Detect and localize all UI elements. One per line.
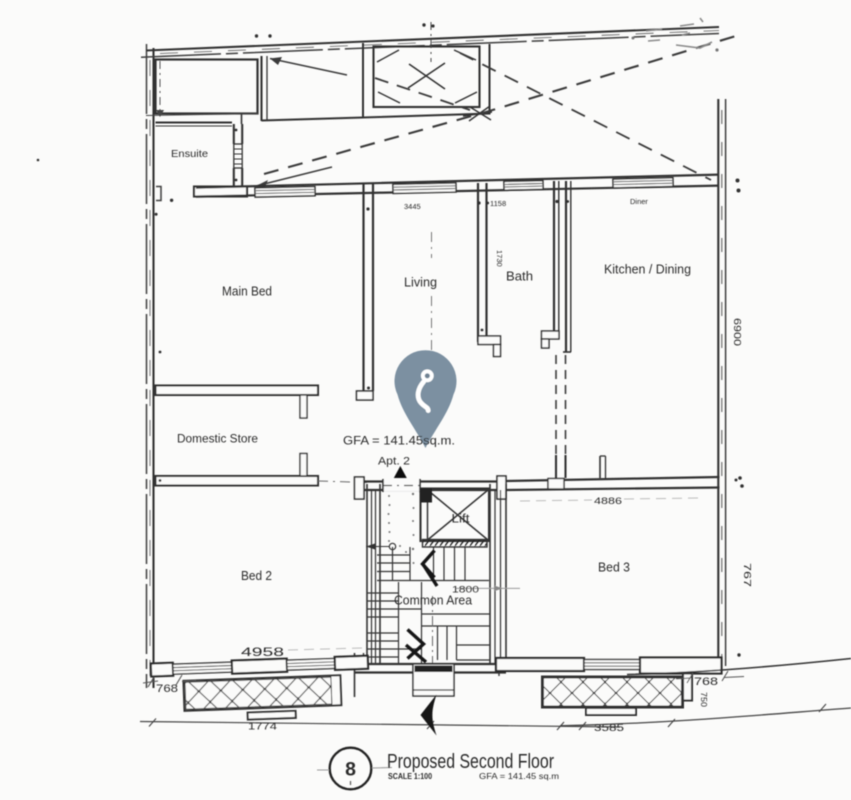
svg-text:3445: 3445 bbox=[404, 202, 421, 211]
svg-text:3585: 3585 bbox=[594, 723, 625, 734]
svg-text:6900: 6900 bbox=[731, 318, 742, 347]
svg-text:Living: Living bbox=[404, 276, 437, 290]
svg-text:Lift: Lift bbox=[452, 514, 471, 526]
svg-text:Bed 2: Bed 2 bbox=[241, 569, 272, 583]
svg-text:767: 767 bbox=[741, 563, 752, 588]
svg-text:Bed 3: Bed 3 bbox=[598, 561, 630, 575]
svg-text:Diner: Diner bbox=[630, 197, 648, 206]
svg-text:GFA = 141.45sq.m.: GFA = 141.45sq.m. bbox=[343, 436, 455, 448]
svg-text:Bath: Bath bbox=[506, 270, 533, 284]
svg-text:Apt. 2: Apt. 2 bbox=[378, 456, 410, 468]
svg-text:768: 768 bbox=[156, 683, 178, 695]
svg-text:GFA = 141.45 sq.m: GFA = 141.45 sq.m bbox=[479, 772, 559, 781]
svg-text:750: 750 bbox=[699, 692, 708, 708]
svg-text:Proposed Second Floor: Proposed Second Floor bbox=[387, 750, 554, 773]
svg-text:1774: 1774 bbox=[248, 722, 278, 733]
svg-text:Main Bed: Main Bed bbox=[222, 285, 272, 299]
svg-text:1158: 1158 bbox=[490, 199, 506, 208]
svg-text:Ensuite: Ensuite bbox=[171, 148, 208, 160]
svg-text:Common Area: Common Area bbox=[394, 594, 472, 608]
svg-text:8: 8 bbox=[345, 759, 356, 781]
svg-text:1730: 1730 bbox=[495, 250, 504, 267]
svg-text:1800: 1800 bbox=[452, 585, 479, 596]
svg-text:Kitchen / Dining: Kitchen / Dining bbox=[604, 262, 691, 277]
svg-text:SCALE 1:100: SCALE 1:100 bbox=[388, 772, 432, 781]
svg-text:Domestic Store: Domestic Store bbox=[177, 434, 258, 446]
svg-text:4886: 4886 bbox=[594, 496, 622, 507]
svg-text:768: 768 bbox=[694, 676, 718, 688]
svg-text:4958: 4958 bbox=[241, 645, 285, 659]
